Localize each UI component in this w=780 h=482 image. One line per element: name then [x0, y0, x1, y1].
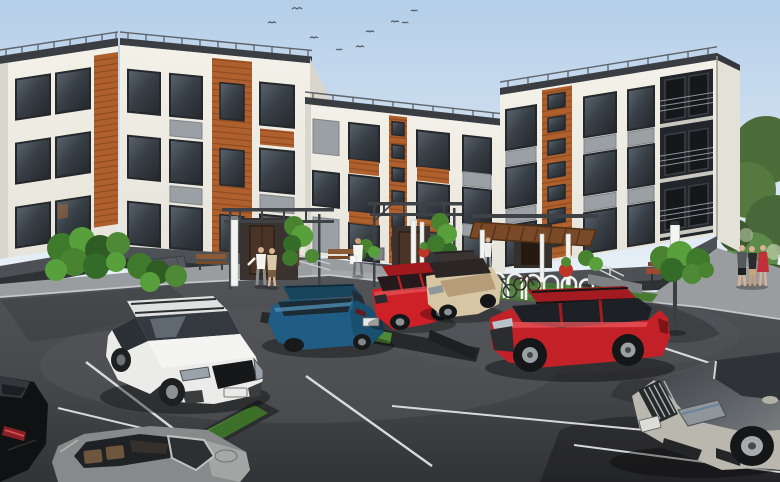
render-canvas — [0, 0, 780, 482]
recessed-balconies — [660, 69, 713, 242]
building-block-left-end — [0, 32, 118, 259]
side-mirror — [215, 450, 237, 462]
light-bollard — [231, 218, 238, 286]
side-mirror — [762, 396, 778, 404]
right-side-face — [717, 60, 740, 252]
red-dress — [757, 252, 769, 272]
architectural-render — [0, 0, 780, 482]
light-post — [411, 220, 416, 268]
license-plate — [224, 388, 247, 397]
